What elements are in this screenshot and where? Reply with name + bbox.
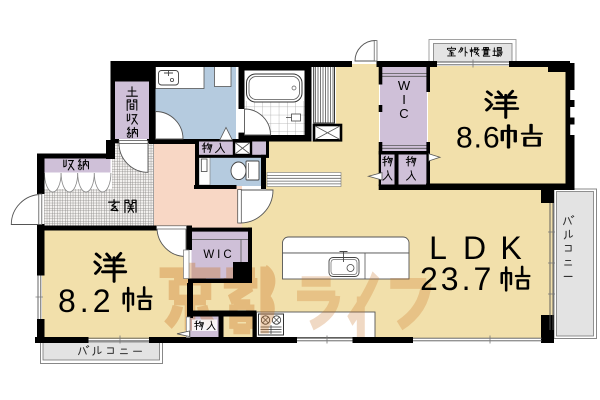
svg-text:I: I bbox=[402, 92, 406, 107]
svg-text:8.6: 8.6 bbox=[456, 122, 501, 155]
svg-text:K: K bbox=[500, 230, 521, 266]
svg-text:WIC: WIC bbox=[203, 249, 234, 261]
svg-text:23.7: 23.7 bbox=[420, 261, 494, 297]
svg-text:W: W bbox=[398, 78, 411, 93]
svg-text:8.2: 8.2 bbox=[58, 283, 114, 319]
svg-text:C: C bbox=[399, 106, 408, 121]
